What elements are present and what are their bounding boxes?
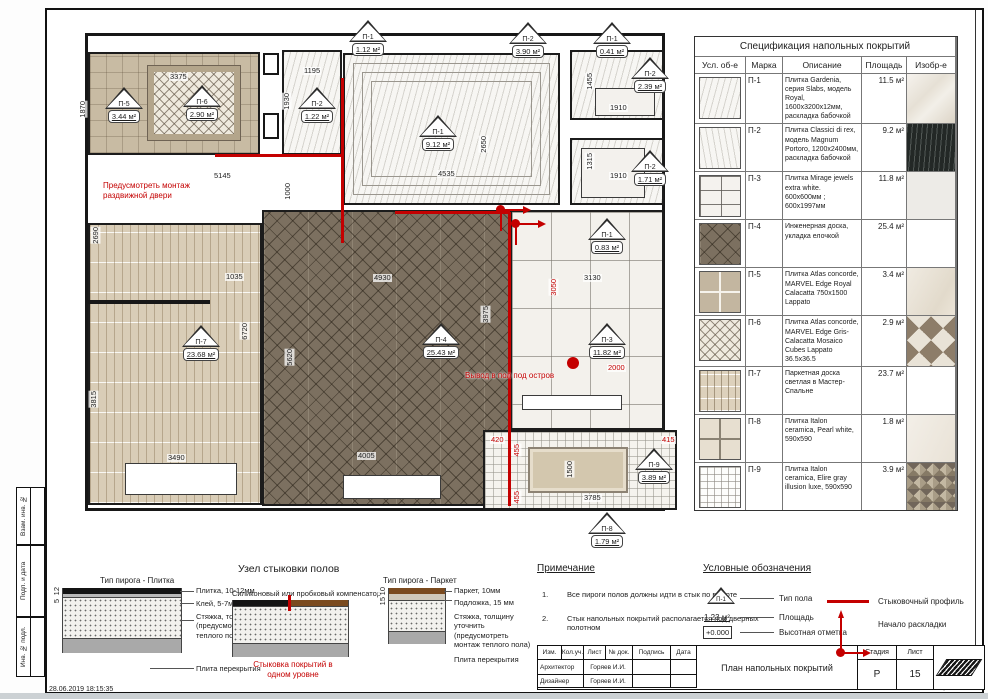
triangle-icon: П-7	[182, 325, 220, 347]
photo-p5	[907, 268, 955, 315]
triangle-icon: П-9	[635, 448, 673, 470]
bottom-strip	[0, 693, 988, 699]
stamp-label: Взам. инв. №	[17, 488, 30, 544]
dim-label: 1500	[565, 461, 575, 478]
notes-title: Примечание	[537, 563, 595, 574]
detail-label: Подложка, 15 мм	[454, 598, 534, 607]
dim-label: 1870	[78, 101, 88, 118]
leader-line	[740, 632, 774, 633]
floor-marker-p7: П-723.68 м²	[179, 325, 223, 361]
drawing-sheet: Взам. инв. № Подп. и дата Инв. № подл. 2…	[0, 0, 988, 699]
spec-col-header: Усл. об-е	[695, 57, 745, 73]
photo-p6	[907, 316, 955, 365]
tb-name: Горяев И.И.	[584, 675, 633, 688]
spec-col-header: Описание	[783, 57, 861, 73]
dim-label-red: 415	[661, 436, 676, 444]
detail-dim: 12	[52, 587, 62, 595]
legend-type-marker: П-1	[707, 587, 735, 604]
kitchen-island	[522, 395, 622, 410]
floor-marker-p2: П-21.71 м²	[628, 150, 672, 186]
detail-right-drawing	[388, 588, 446, 644]
photo-p2	[907, 124, 955, 171]
floor-marker-p2: П-22.39 м²	[628, 57, 672, 93]
sheet-label: Лист	[897, 646, 933, 660]
swatch-p3	[699, 175, 741, 217]
profile-line-sample	[827, 600, 869, 603]
red-note-island: Вывод в пол под остров	[465, 371, 554, 381]
layer-slab	[63, 639, 181, 653]
desc-cell: Плитка Atlas concorde, MARVEL Edge Royal…	[783, 268, 861, 315]
area-cell: 3.4 м²	[862, 268, 906, 315]
spec-col-header: Марка	[746, 57, 782, 73]
spec-col-header: Изобр-е	[907, 57, 955, 73]
dim-label: 5145	[213, 172, 232, 180]
mark-cell: П-6	[746, 316, 782, 365]
spec-table-title: Спецификация напольных покрытий	[695, 37, 955, 56]
dim-label: 3375	[169, 73, 188, 81]
triangle-icon: П-2	[631, 57, 669, 79]
stamp-label: Подп. и дата	[17, 546, 30, 616]
leader-line	[180, 591, 194, 592]
photo-cell	[907, 415, 955, 462]
red-note-sliding-door: Предусмотреть монтаж раздвижной двери	[103, 181, 211, 200]
layer-screed	[233, 606, 348, 644]
tb-empty	[671, 675, 697, 688]
legend-area-value: 1.23 м²	[704, 613, 730, 622]
area-cell: 11.8 м²	[862, 172, 906, 219]
dim-label: 4535	[437, 170, 456, 178]
photo-p1	[907, 74, 955, 123]
floor-marker-p8: П-81.79 м²	[585, 512, 629, 548]
tb-header: Подпись	[633, 646, 671, 660]
red-joint-line	[508, 212, 511, 506]
swatch-p6	[699, 319, 741, 361]
sheet-value: 15	[897, 660, 933, 689]
dim-label-red: 2000	[607, 364, 626, 372]
triangle-icon: П-1	[349, 20, 387, 42]
legend-profile-label: Стыковочный профиль	[878, 597, 964, 606]
dim-label-red: 3050	[549, 279, 559, 296]
dim-label-red: 420	[490, 436, 505, 444]
swatch-cell	[695, 415, 745, 462]
floor-marker-p2: П-21.22 м²	[295, 87, 339, 123]
photo-cell	[907, 220, 955, 267]
triangle-icon: П-8	[588, 512, 626, 534]
detail-dim: 5	[52, 599, 62, 603]
dim-label: 4005	[357, 452, 376, 460]
triangle-icon: П-3	[588, 323, 626, 345]
detail-label: Паркет, 10мм	[454, 586, 534, 595]
triangle-icon: П-1	[588, 218, 626, 240]
detail-middle-title: Силиконовый или пробковый компенсатор	[232, 589, 381, 598]
swatch-cell	[695, 172, 745, 219]
dim-label: 3785	[583, 494, 602, 502]
detail-left-title: Тип пирога - Плитка	[100, 576, 174, 585]
revision-grid: Изм. Кол.уч. Лист № док. Подпись Дата Ар…	[538, 646, 697, 689]
dim-label: 3815	[89, 391, 99, 408]
red-joint-line	[341, 78, 344, 243]
red-joint-line	[395, 211, 510, 214]
dim-label: 1000	[283, 183, 293, 200]
swatch-cell	[695, 124, 745, 171]
triangle-icon: П-5	[105, 87, 143, 109]
floor-marker-p2: П-23.90 м²	[506, 22, 550, 58]
mark-cell: П-4	[746, 220, 782, 267]
layer-slab	[233, 644, 348, 657]
floor-marker-p1: П-19.12 м²	[416, 115, 460, 151]
tb-empty	[633, 675, 671, 688]
dim-label: 1930	[282, 93, 292, 110]
legend-elev-value: +0.000	[703, 626, 732, 639]
tb-header: Дата	[671, 646, 697, 660]
photo-cell	[907, 463, 955, 510]
desc-cell: Плитка Atlas concorde, MARVEL Edge Gris-…	[783, 316, 861, 365]
dim-label-red: 455	[512, 444, 522, 457]
triangle-icon: П-1	[419, 115, 457, 137]
stamp-label: Инв. № подл.	[17, 618, 30, 676]
mark-cell: П-7	[746, 367, 782, 414]
photo-cell	[907, 74, 955, 123]
area-cell: 1.8 м²	[862, 415, 906, 462]
area-cell: 3.9 м²	[862, 463, 906, 510]
photo-p4	[907, 220, 955, 267]
leader-line	[150, 668, 194, 669]
desc-cell: Плитка Classici di rex, модель Magnum Po…	[783, 124, 861, 171]
dim-label-red: 455	[512, 491, 522, 504]
stamp-box: Взам. инв. №	[16, 487, 45, 545]
detail-dim: 10	[378, 587, 388, 595]
spec-table: Спецификация напольных покрытий Усл. об-…	[694, 36, 958, 511]
area-cell: 23.7 м²	[862, 367, 906, 414]
dim-label: 3130	[583, 274, 602, 282]
floor-marker-p3: П-311.82 м²	[585, 323, 629, 359]
floor-marker-p6: П-62.90 м²	[180, 85, 224, 121]
legend-area-label: Площадь	[779, 613, 814, 622]
area-cell: 25.4 м²	[862, 220, 906, 267]
swatch-cell	[695, 316, 745, 365]
bathtub	[528, 447, 628, 493]
detail-middle-caption: Стыковка покрытий в одном уровне	[243, 660, 343, 679]
sheet-column: Лист 15	[897, 646, 934, 689]
compensator-bar	[288, 595, 291, 611]
photo-p9	[907, 463, 955, 510]
tb-header: № док.	[606, 646, 633, 660]
dim-label: 6720	[240, 323, 250, 340]
date-stamp: 28.06.2019 18:15:35	[49, 686, 113, 693]
swatch-cell	[695, 220, 745, 267]
triangle-icon: П-2	[509, 22, 547, 44]
legend-title: Условные обозначения	[703, 563, 811, 574]
detail-right-title: Тип пирога - Паркет	[383, 576, 457, 585]
drawing-title: План напольных покрытий	[697, 646, 858, 689]
tb-role: Дизайнер	[538, 675, 584, 688]
stamp-box: Подп. и дата	[16, 545, 45, 617]
swatch-p7	[699, 370, 741, 412]
dim-label: 1035	[225, 273, 244, 281]
tb-empty	[671, 660, 697, 675]
mark-cell: П-2	[746, 124, 782, 171]
spec-col-header: Площадь	[862, 57, 906, 73]
legend-start-label: Начало раскладки	[878, 620, 946, 629]
stamp-box: Инв. № подл.	[16, 617, 45, 677]
desc-cell: Плитка Gardenia, серия Slabs, модель Roy…	[783, 74, 861, 123]
note-number: 2.	[542, 614, 548, 623]
title-block: Изм. Кол.уч. Лист № док. Подпись Дата Ар…	[537, 645, 985, 690]
legend-type-label: Тип пола	[779, 594, 812, 603]
dim-label: 3975	[481, 306, 491, 323]
swatch-cell	[695, 367, 745, 414]
dim-label: 3490	[167, 454, 186, 462]
triangle-icon: П-1	[707, 587, 735, 604]
detail-label: Плита перекрытия	[454, 655, 534, 664]
triangle-icon: П-2	[631, 150, 669, 172]
area-cell: 9.2 м²	[862, 124, 906, 171]
desc-cell: Паркетная доска светлая в Мастер-Спальне	[783, 367, 861, 414]
shaft	[263, 53, 279, 75]
floor-marker-p1: П-10.83 м²	[585, 218, 629, 254]
swatch-p1	[699, 77, 741, 119]
leader-line	[180, 620, 194, 621]
mark-cell: П-1	[746, 74, 782, 123]
triangle-icon: П-2	[298, 87, 336, 109]
photo-cell	[907, 172, 955, 219]
furniture-outline	[125, 463, 237, 495]
tb-header: Изм.	[538, 646, 562, 660]
dim-label: 1455	[585, 73, 595, 90]
layer-tile	[233, 600, 291, 606]
triangle-icon: П-6	[183, 85, 221, 107]
stage-value: Р	[858, 660, 896, 689]
leader-line	[444, 600, 452, 601]
detail-label: Стяжка, толщину уточнить (предусмотреть …	[454, 612, 534, 650]
swatch-p2	[699, 127, 741, 169]
tb-role: Архитектор	[538, 660, 584, 675]
layer-slab	[389, 632, 445, 644]
photo-cell	[907, 124, 955, 171]
dim-label: 1910	[609, 104, 628, 112]
dim-label: 1910	[609, 172, 628, 180]
swatch-p8	[699, 418, 741, 460]
company-logo	[936, 659, 983, 676]
leader-line	[444, 591, 452, 592]
mark-cell: П-5	[746, 268, 782, 315]
legend-elev-label: Высотная отметка	[779, 628, 847, 637]
room-p4-living	[262, 210, 510, 506]
floor-marker-p1: П-10.41 м²	[590, 22, 634, 58]
note-number: 1.	[542, 590, 548, 599]
floor-marker-p9: П-93.89 м²	[632, 448, 676, 484]
dim-label: 1315	[585, 153, 595, 170]
photo-cell	[907, 268, 955, 315]
tb-empty	[633, 660, 671, 675]
leader-line	[180, 603, 194, 604]
photo-cell	[907, 316, 955, 365]
floor-marker-p5: П-53.44 м²	[102, 87, 146, 123]
layer-screed	[63, 597, 181, 639]
desc-cell: Инженерная доска, укладка елочкой	[783, 220, 861, 267]
swatch-p9	[699, 466, 741, 508]
detail-left-drawing	[62, 588, 182, 653]
tb-header: Кол.уч.	[562, 646, 584, 660]
leader-line	[740, 617, 774, 618]
red-joint-line	[215, 154, 342, 157]
shaft	[263, 113, 279, 139]
desc-cell: Плитка Mirage jewels extra white. 600x60…	[783, 172, 861, 219]
floor-marker-p4: П-425.43 м²	[419, 323, 463, 359]
photo-p7	[907, 367, 955, 414]
leader-line	[740, 598, 774, 599]
triangle-icon: П-4	[422, 323, 460, 345]
desc-cell: Плитка Italon ceramica, Elire gray illus…	[783, 463, 861, 510]
swatch-cell	[695, 268, 745, 315]
layer-parquet	[291, 600, 349, 606]
interior-wall	[88, 300, 210, 304]
dim-label: 1195	[303, 67, 321, 75]
photo-p3	[907, 172, 955, 219]
swatch-p4	[699, 223, 741, 265]
detail-dim: 15	[378, 597, 388, 605]
photo-cell	[907, 367, 955, 414]
desc-cell: Плитка Italon ceramica, Pearl white, 590…	[783, 415, 861, 462]
furniture-outline	[343, 475, 441, 499]
frame-inner-line	[975, 10, 976, 688]
layer-screed	[389, 600, 445, 632]
floor-outlet-dot	[567, 357, 579, 369]
dim-label: 2690	[91, 227, 101, 244]
dim-label: 5620	[285, 349, 295, 366]
tb-name: Горяев И.И.	[584, 660, 633, 675]
mark-cell: П-8	[746, 415, 782, 462]
dim-label: 2650	[479, 136, 489, 153]
mark-cell: П-3	[746, 172, 782, 219]
swatch-cell	[695, 74, 745, 123]
mark-cell: П-9	[746, 463, 782, 510]
tb-header: Лист	[584, 646, 606, 660]
photo-p8	[907, 415, 955, 462]
area-cell: 2.9 м²	[862, 316, 906, 365]
dim-label: 4930	[373, 274, 392, 282]
swatch-cell	[695, 463, 745, 510]
swatch-p5	[699, 271, 741, 313]
details-title: Узел стыковки полов	[238, 563, 339, 575]
triangle-icon: П-1	[593, 22, 631, 44]
floor-plan: Предусмотреть монтаж раздвижной двери Вы…	[85, 33, 667, 511]
floor-marker-p1: П-11.12 м²	[346, 20, 390, 56]
area-cell: 11.5 м²	[862, 74, 906, 123]
logo-cell	[934, 646, 984, 689]
